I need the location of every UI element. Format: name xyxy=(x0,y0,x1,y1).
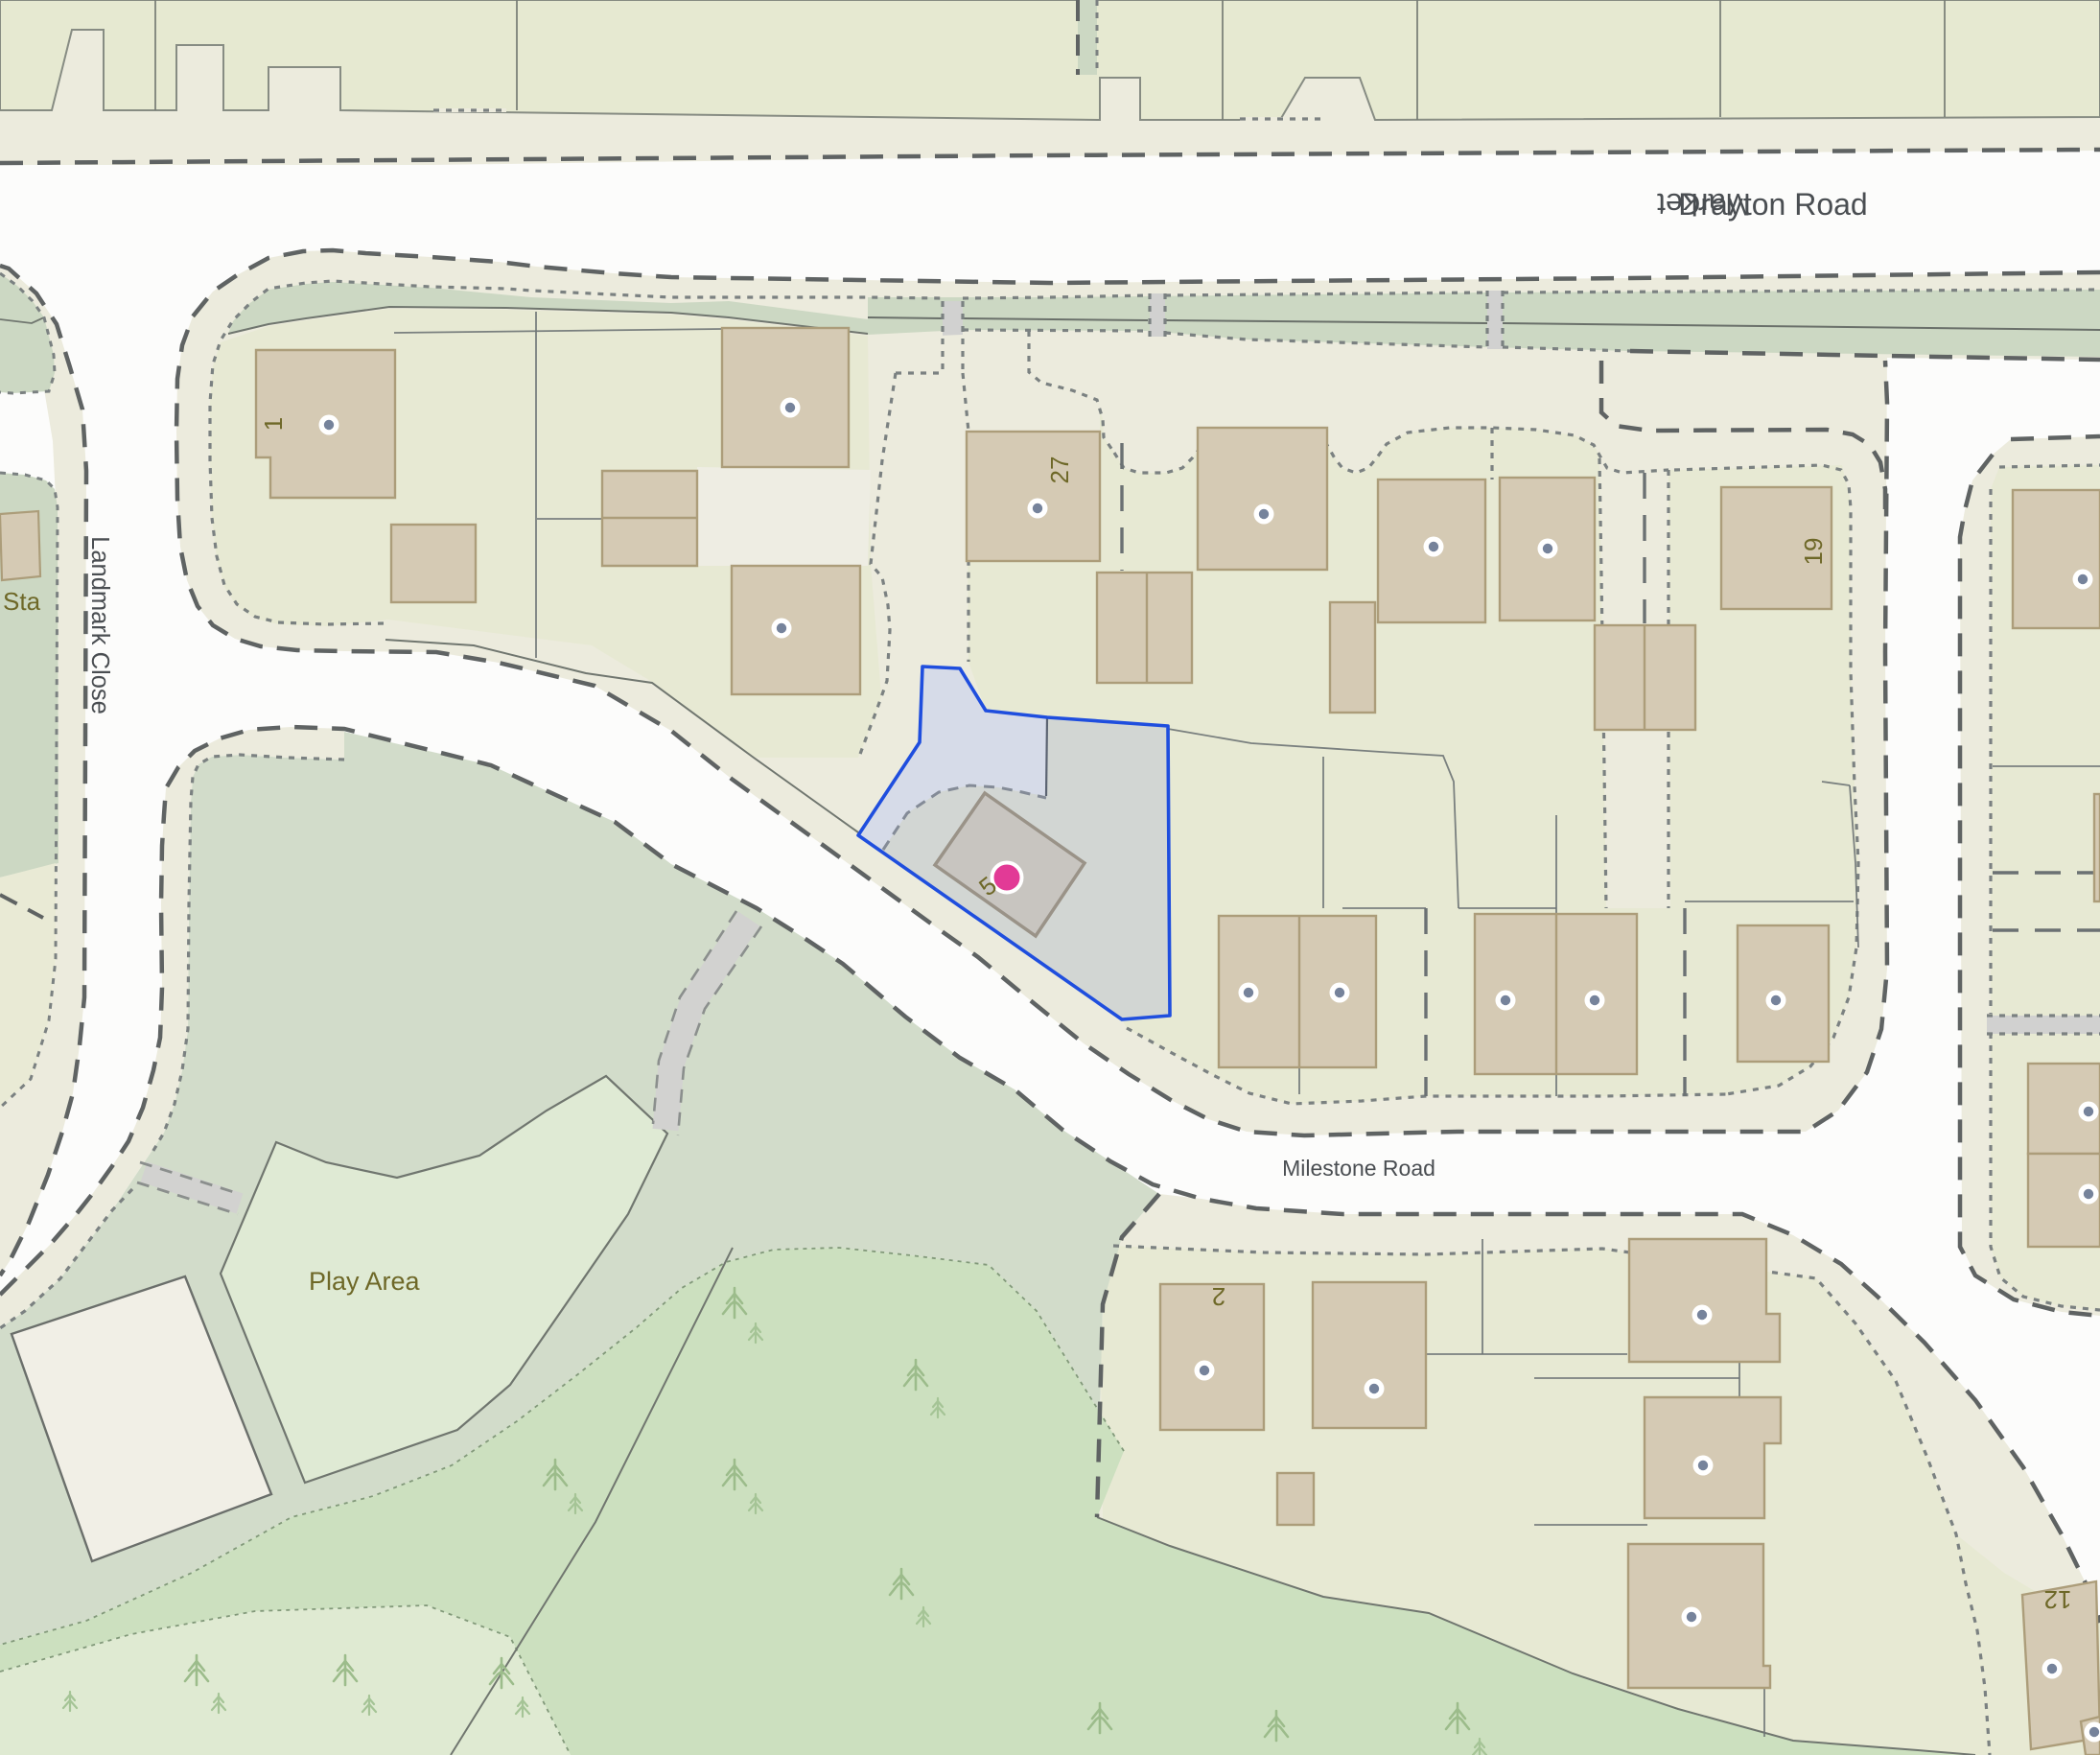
svg-text:Landmark Close: Landmark Close xyxy=(86,536,113,714)
svg-text:Play Area: Play Area xyxy=(309,1267,421,1296)
svg-text:19: 19 xyxy=(1799,538,1828,566)
svg-text:Sta: Sta xyxy=(3,587,41,616)
svg-text:2: 2 xyxy=(1212,1282,1225,1311)
svg-text:1: 1 xyxy=(259,417,288,431)
svg-text:Milestone Road: Milestone Road xyxy=(1282,1156,1435,1181)
svg-text:27: 27 xyxy=(1045,456,1074,484)
svg-text:Market: Market xyxy=(1657,187,1751,222)
svg-text:12: 12 xyxy=(2044,1585,2072,1614)
